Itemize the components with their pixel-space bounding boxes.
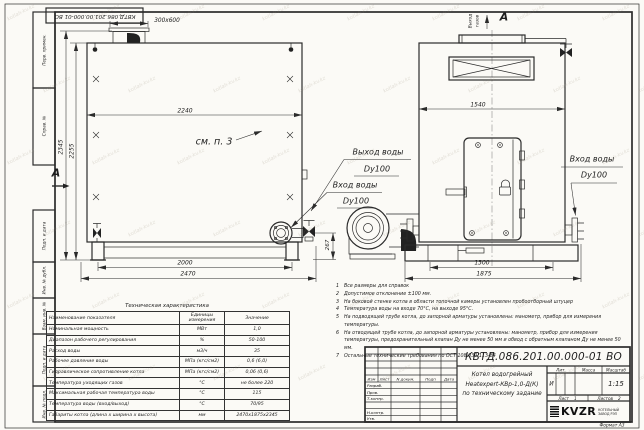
- dim-front-base: 2000: [177, 260, 192, 267]
- product-model-line: Heatexpert-КВр-1,0-Д(К): [459, 381, 545, 391]
- tech-unit: °С: [180, 399, 225, 410]
- tech-col-header: Единицы измерения: [180, 312, 225, 325]
- sheet-label: Лист: [558, 396, 569, 401]
- tech-col-header: Значение: [225, 312, 290, 325]
- lit-header: Лит.: [556, 367, 566, 372]
- title-block-name: Котел водогрейный Heatexpert-КВр-1,0-Д(К…: [459, 371, 545, 400]
- rev-col-docnum: N докум.: [396, 376, 414, 381]
- gas-outlet-label-2: газов: [475, 15, 480, 27]
- mass-header: Масса: [582, 367, 595, 372]
- note-text: На отводящей трубе котла, до запорной ар…: [344, 330, 630, 353]
- tech-col-header: Наименование показателя: [47, 312, 180, 325]
- rev-col-list: Лист: [380, 376, 390, 381]
- note-number: 3: [331, 299, 344, 307]
- tech-unit: °С: [180, 389, 225, 400]
- tech-row: Температура уходящих газов°Сне более 220: [47, 378, 290, 389]
- product-name-line: Котел водогрейный: [459, 371, 545, 381]
- dim-front-overall: 2470: [180, 271, 195, 278]
- tech-param: Гидравлическое сопротивление котла: [47, 367, 180, 378]
- tech-unit: %: [180, 335, 225, 346]
- tech-row: Гидравлическое сопротивление котлаМПа (к…: [47, 367, 290, 378]
- frame-cell-perv-primen: Перв. примен.: [42, 34, 47, 65]
- dim-height-body: 2255: [68, 143, 75, 158]
- dim-side-base: 1300: [474, 260, 489, 267]
- tech-value: 1,0: [225, 325, 290, 336]
- drawing-sheet: КВТД.086.201.00.000-01 ВО Перв. примен. …: [0, 0, 644, 430]
- rev-col-izm: Изм: [368, 376, 376, 381]
- rev-col-data: Дата: [444, 376, 454, 381]
- tech-unit: м3/ч: [180, 346, 225, 357]
- company-logo: KVZR КОТЕЛЬНЫЙ ЗАВОД РЭП: [550, 403, 628, 420]
- tech-row: Габариты котла (длина х ширина х высота)…: [47, 410, 290, 421]
- water-in-left-label: Вход воды: [333, 181, 378, 190]
- tech-row: Максимальная рабочая температура воды°С1…: [47, 389, 290, 400]
- tech-value: 35: [225, 346, 290, 357]
- water-in-left-dn: Dy100: [343, 196, 369, 205]
- note-item: 3На боковой стенке котла в области топоч…: [331, 299, 630, 307]
- note-number: 7: [331, 353, 344, 361]
- technical-notes: 1Все размеры для справок 2Допустимое отк…: [331, 283, 630, 361]
- tech-param: Номинальная мощность: [47, 325, 180, 336]
- tech-value: 0,6 (6,0): [225, 357, 290, 368]
- note-number: 4: [331, 306, 344, 314]
- note-item: 1Все размеры для справок: [331, 283, 630, 291]
- sheets-label: Листов: [597, 396, 613, 401]
- note-text: На подводящей трубе котла, до запорной а…: [344, 314, 630, 330]
- dim-side-overall: 1875: [476, 271, 491, 278]
- tech-row: Рабочее давление водыМПа (кгс/см2)0,6 (6…: [47, 357, 290, 368]
- tech-value: 0,06 (0,6): [225, 367, 290, 378]
- note-number: 6: [331, 330, 344, 353]
- tech-row: Номинальная мощностьМВт1,0: [47, 325, 290, 336]
- note-number: 2: [331, 291, 344, 299]
- format-note: Формат А3: [599, 423, 624, 428]
- role-tkontr: Т.контр.: [367, 396, 384, 401]
- role-utv: Утв.: [367, 416, 375, 421]
- lit-value: И: [549, 381, 554, 388]
- logo-sub-line: ЗАВОД РЭП: [598, 412, 619, 416]
- sheets-cell: Листов 2: [588, 395, 630, 401]
- note-item: 4Температура воды на входе 70°С, на выхо…: [331, 306, 630, 314]
- scale-value: 1:15: [608, 380, 624, 388]
- tech-row: Температура воды (вход/выход)°С70/95: [47, 399, 290, 410]
- tech-param: Диапазон рабочего регулирования: [47, 335, 180, 346]
- tech-param: Температура воды (вход/выход): [47, 399, 180, 410]
- dim-side-width: 1540: [470, 101, 485, 108]
- kvzr-logo-subtitle: КОТЕЛЬНЫЙ ЗАВОД РЭП: [598, 408, 619, 416]
- see-note-callout: см. п. 3: [196, 137, 233, 148]
- note-item: 5На подводящей трубе котла, до запорной …: [331, 314, 630, 330]
- tech-param: Расход воды: [47, 346, 180, 357]
- note-text: Все размеры для справок: [344, 283, 630, 291]
- note-text: Температура воды на входе 70°С, на выход…: [344, 306, 630, 314]
- product-note-line: по техническому задание: [459, 390, 545, 400]
- dim-front-width: 2240: [177, 107, 192, 114]
- role-razrab: Разраб.: [367, 383, 382, 388]
- water-out-dn: Dy100: [364, 164, 390, 173]
- top-stamp-doc-number: КВТД.086.201.00.000-01 ВО: [54, 13, 135, 19]
- dim-fan-offset: 267: [325, 240, 331, 251]
- tech-unit: МПа (кгс/см2): [180, 357, 225, 368]
- tech-param: Температура уходящих газов: [47, 378, 180, 389]
- water-out-label: Выход воды: [353, 148, 404, 157]
- sheets-value: 2: [618, 396, 621, 401]
- note-text: Допустимое отклонение ±100 мм.: [344, 291, 630, 299]
- scale-header: Масштаб: [606, 367, 626, 372]
- note-text: На боковой стенке котла в области топочн…: [344, 299, 630, 307]
- callout-leaders: [291, 160, 623, 228]
- note-number: 5: [331, 314, 344, 330]
- note-number: 1: [331, 283, 344, 291]
- tech-value: 2470х1875х2345: [225, 410, 290, 421]
- blower-fan: [347, 207, 419, 259]
- tech-value: 115: [225, 389, 290, 400]
- side-view: [400, 15, 584, 266]
- tech-row: Диапазон рабочего регулирования%50-100: [47, 335, 290, 346]
- tech-unit: мм: [180, 410, 225, 421]
- sheet-cell: Лист 1: [547, 395, 588, 401]
- water-in-right-dn: Dy100: [581, 171, 607, 180]
- tech-unit: МПа (кгс/см2): [180, 367, 225, 378]
- section-a-label: А: [52, 167, 61, 180]
- tech-table: Наименование показателя Единицы измерени…: [46, 311, 290, 421]
- tech-value: 50-100: [225, 335, 290, 346]
- frame-cell-podp-data-1: Подп. и дата: [42, 222, 47, 251]
- water-in-right-label: Вход воды: [570, 155, 615, 164]
- role-prov: Пров.: [367, 390, 378, 395]
- tech-unit: МВт: [180, 325, 225, 336]
- frame-cell-sprav-no: Справ. №: [42, 116, 47, 136]
- note-item: 2Допустимое отклонение ±100 мм.: [331, 291, 630, 299]
- role-nkontr: Н.контр.: [367, 410, 384, 415]
- rev-col-podp: Подп: [425, 376, 436, 381]
- tech-row: Расход водым3/ч35: [47, 346, 290, 357]
- tech-param: Максимальная рабочая температура воды: [47, 389, 180, 400]
- tech-unit: °С: [180, 378, 225, 389]
- tech-value: 70/95: [225, 399, 290, 410]
- kvzr-logo-icon: [550, 406, 559, 417]
- view-a-label: А: [500, 11, 509, 24]
- dim-height-full: 2345: [58, 139, 65, 154]
- tech-value: не более 220: [225, 378, 290, 389]
- kvzr-logo-text: KVZR: [561, 405, 596, 418]
- dim-chimney: 300х600: [154, 18, 180, 24]
- title-block-doc-number: КВТД.086.201.00.000-01 ВО: [465, 351, 622, 363]
- tech-param: Габариты котла (длина х ширина х высота): [47, 410, 180, 421]
- tech-table-title: Техническая характеристика: [125, 303, 209, 309]
- sheet-value: 1: [574, 396, 577, 401]
- frame-cell-inv-dubl: Инв. № дубл.: [42, 266, 47, 295]
- gas-outlet-label-1: Выход: [469, 14, 474, 28]
- tech-param: Рабочее давление воды: [47, 357, 180, 368]
- note-item: 6На отводящей трубе котла, до запорной а…: [331, 330, 630, 353]
